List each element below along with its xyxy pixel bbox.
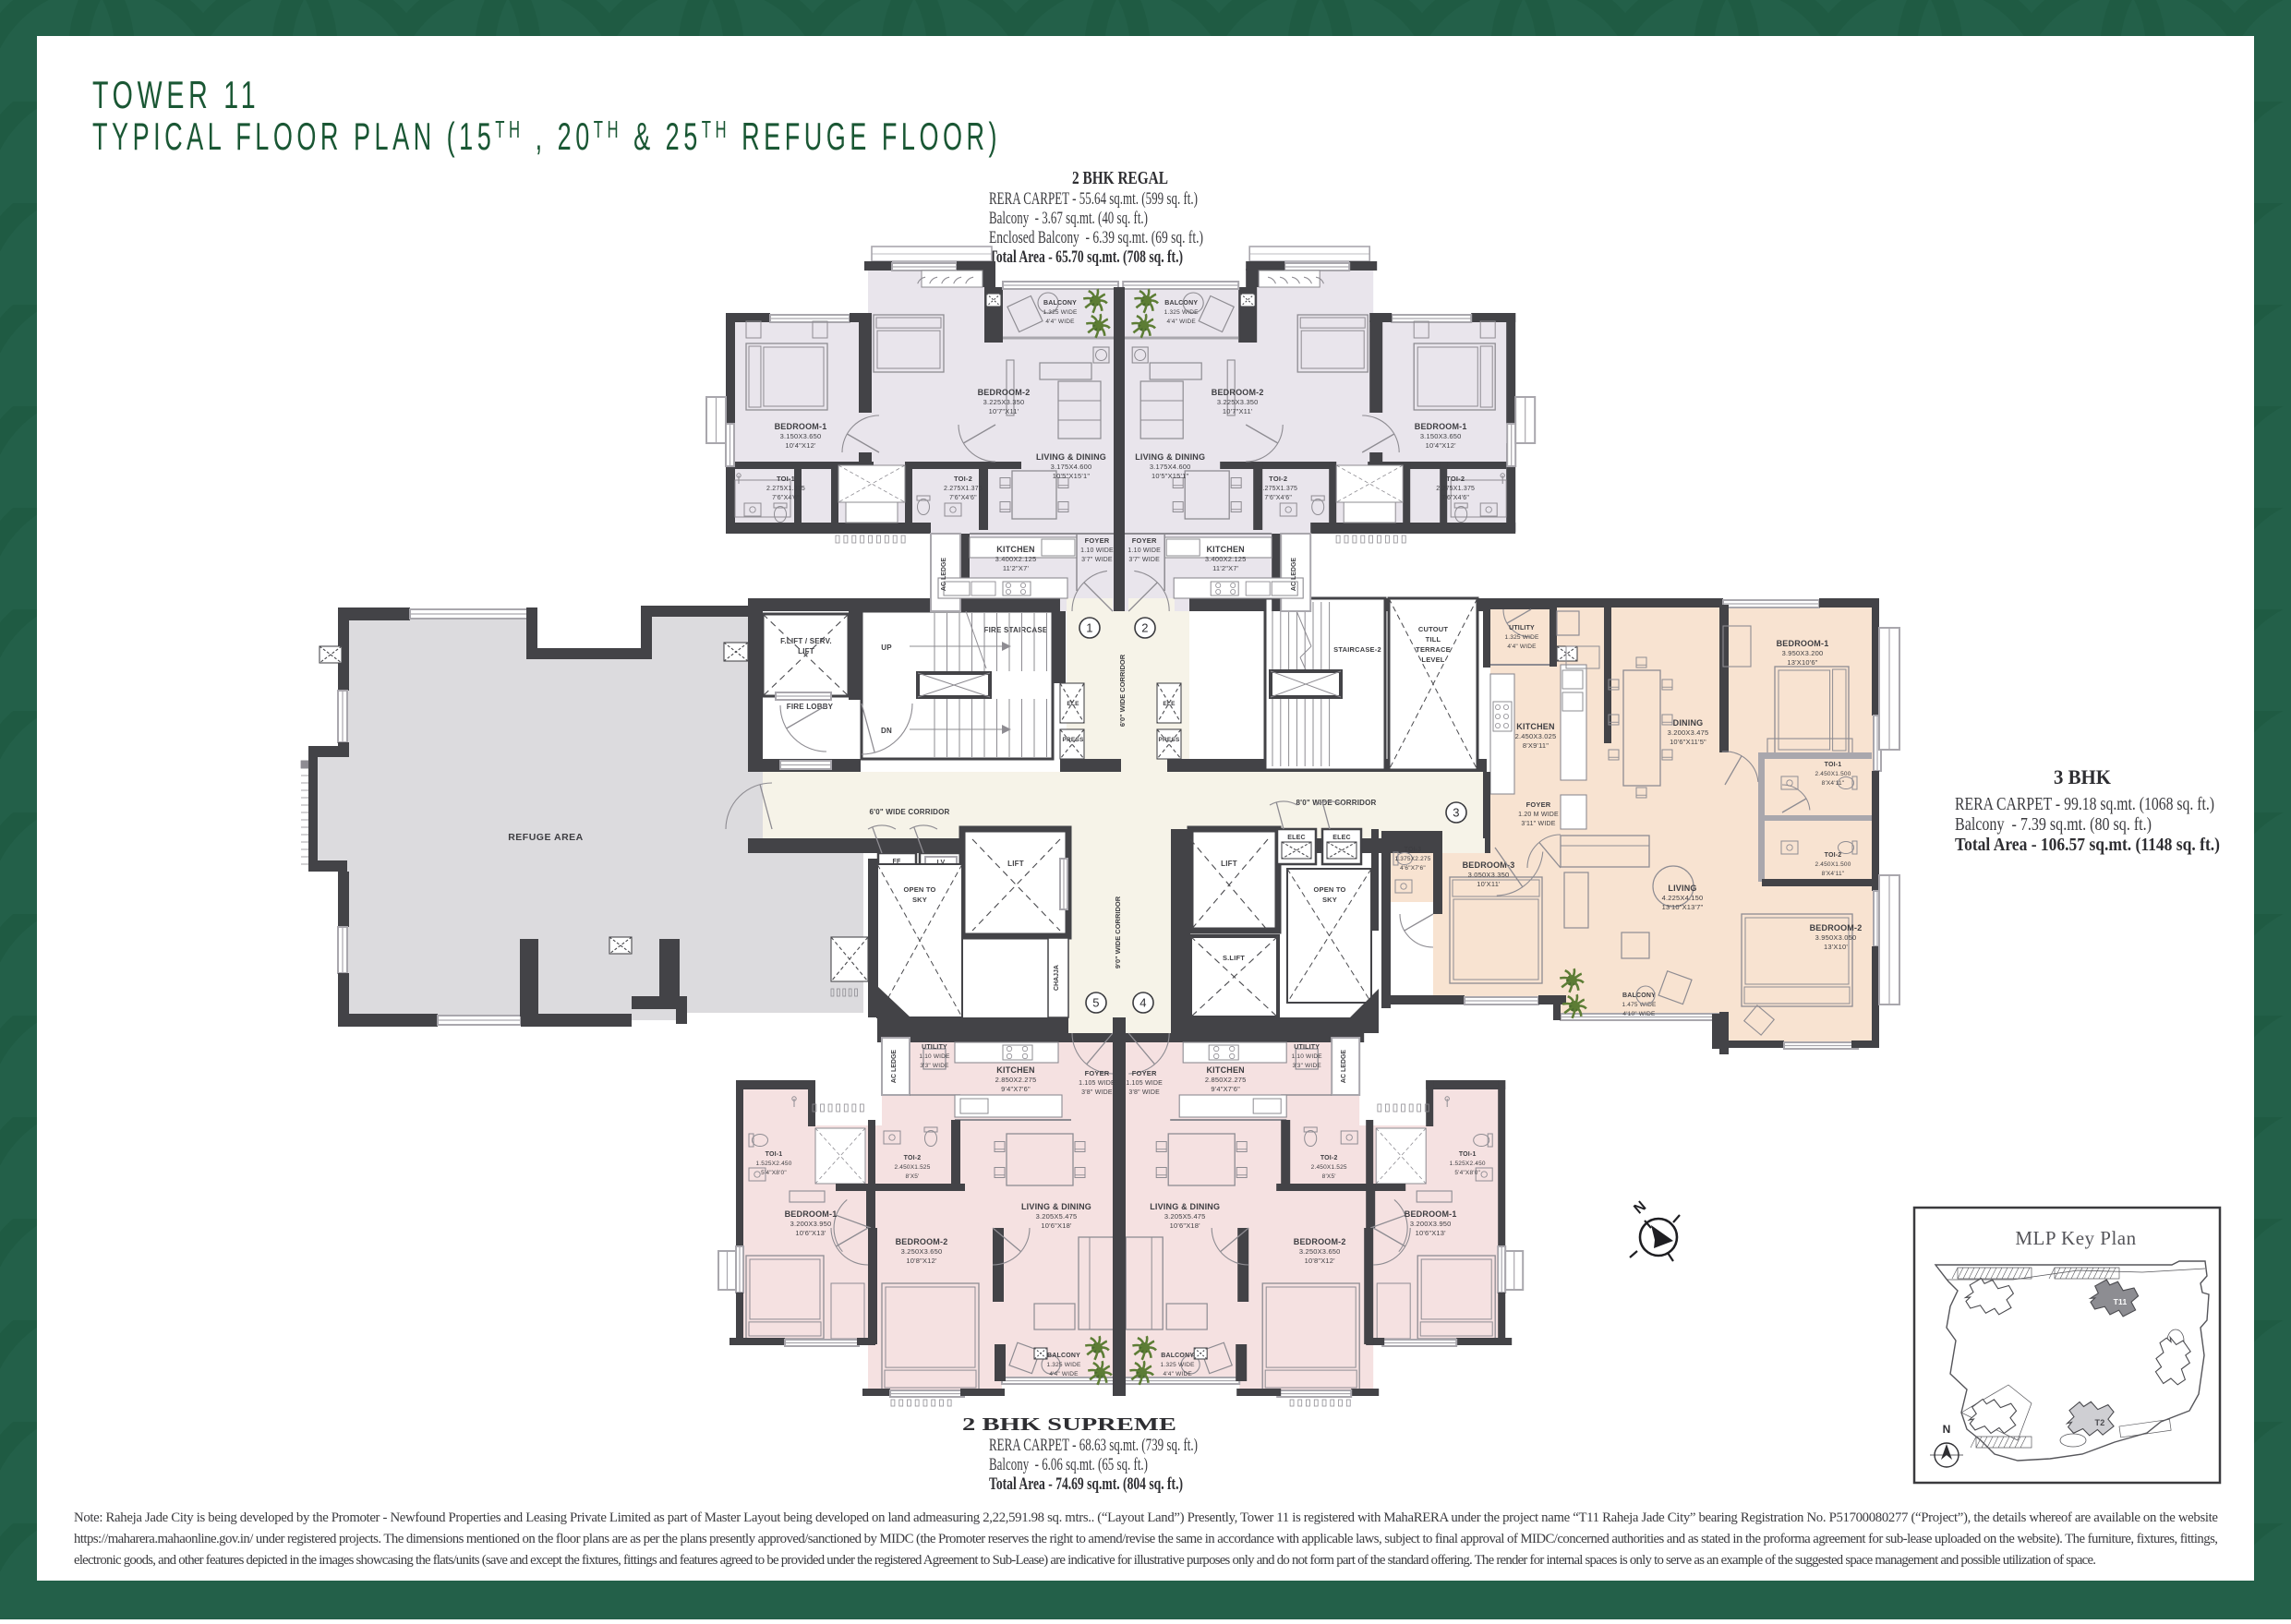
svg-text:F.LIFT / SERV.: F.LIFT / SERV. (780, 637, 832, 645)
svg-text:10'X11': 10'X11' (1477, 880, 1501, 888)
svg-text:ELEC: ELEC (1332, 835, 1350, 841)
svg-text:1.10 WIDE: 1.10 WIDE (1127, 547, 1161, 554)
svg-text:5: 5 (1092, 996, 1099, 1010)
svg-text:7'6"X4'6": 7'6"X4'6" (772, 495, 800, 501)
svg-text:2 BHK SUPREME: 2 BHK SUPREME (962, 1414, 1176, 1435)
svg-text:10'7"X11': 10'7"X11' (1223, 407, 1253, 415)
svg-text:3.175X4.600: 3.175X4.600 (1051, 463, 1092, 471)
svg-text:10'4"X12': 10'4"X12' (1426, 441, 1457, 450)
svg-text:Total Area - 106.57 sq.mt. (11: Total Area - 106.57 sq.mt. (1148 sq. ft.… (1955, 835, 2220, 855)
svg-text:1.10 WIDE: 1.10 WIDE (1292, 1053, 1323, 1060)
svg-text:3.250X3.650: 3.250X3.650 (901, 1247, 943, 1256)
svg-text:3'7" WIDE: 3'7" WIDE (1081, 557, 1113, 563)
svg-text:10'6"X18': 10'6"X18' (1041, 1221, 1072, 1230)
svg-text:BEDROOM-2: BEDROOM-2 (1294, 1237, 1346, 1246)
svg-text:FOYER: FOYER (1085, 1069, 1110, 1077)
svg-text:8'0" WIDE CORRIDOR: 8'0" WIDE CORRIDOR (1296, 799, 1376, 807)
svg-text:CUTOUT: CUTOUT (1418, 625, 1449, 633)
svg-text:TOI-2: TOI-2 (1825, 852, 1842, 859)
svg-text:LIVING: LIVING (1668, 884, 1696, 893)
svg-text:BEDROOM-1: BEDROOM-1 (1777, 639, 1829, 648)
svg-text:KITCHEN: KITCHEN (1206, 1065, 1244, 1075)
svg-text:LIFT: LIFT (1007, 860, 1024, 868)
svg-text:8'X4'11": 8'X4'11" (1822, 780, 1845, 787)
svg-text:2.275X1.375: 2.275X1.375 (1436, 486, 1475, 492)
svg-text:FOYER: FOYER (1526, 800, 1551, 809)
svg-text:FOYER: FOYER (1132, 1069, 1157, 1077)
svg-text:BALCONY: BALCONY (1043, 300, 1077, 307)
svg-text:BEDROOM-1: BEDROOM-1 (785, 1209, 838, 1219)
svg-text:1: 1 (1086, 621, 1092, 635)
svg-text:TOI-2: TOI-2 (1320, 1155, 1338, 1161)
svg-text:TOI-1: TOI-1 (1825, 762, 1842, 768)
svg-text:7'6"X4'6": 7'6"X4'6" (1441, 495, 1469, 501)
svg-text:4'4" WIDE: 4'4" WIDE (1045, 319, 1075, 325)
svg-text:TOWER 11: TOWER 11 (92, 72, 259, 116)
svg-text:3.400X2.125: 3.400X2.125 (1205, 555, 1247, 563)
svg-text:10'5"X15'1": 10'5"X15'1" (1152, 472, 1189, 480)
svg-text:electronic goods, and other fe: electronic goods, and other features dep… (74, 1553, 2096, 1568)
svg-text:9'4"X7'6": 9'4"X7'6" (1211, 1085, 1240, 1093)
svg-text:3.205X5.475: 3.205X5.475 (1164, 1212, 1206, 1221)
svg-text:4'4" WIDE: 4'4" WIDE (1164, 1371, 1193, 1377)
svg-text:BEDROOM-1: BEDROOM-1 (1405, 1209, 1457, 1219)
svg-text:3.150X3.650: 3.150X3.650 (1420, 432, 1462, 440)
svg-text:Note: Raheja Jade City is bein: Note: Raheja Jade City is being develope… (74, 1510, 2218, 1525)
svg-text:8'X9'11": 8'X9'11" (1523, 741, 1549, 750)
svg-text:ELE: ELE (1067, 701, 1079, 707)
svg-text:3.250X3.650: 3.250X3.650 (1299, 1247, 1341, 1256)
svg-text:3 BHK: 3 BHK (2054, 765, 2111, 788)
svg-text:1.20 M WIDE: 1.20 M WIDE (1518, 812, 1559, 818)
svg-text:3'3" WIDE: 3'3" WIDE (920, 1063, 949, 1069)
svg-text:1.10 WIDE: 1.10 WIDE (1080, 547, 1114, 554)
svg-text:LIVING & DINING: LIVING & DINING (1021, 1202, 1091, 1211)
svg-text:2.850X2.275: 2.850X2.275 (1205, 1076, 1247, 1084)
svg-text:UTILITY: UTILITY (1509, 625, 1535, 632)
svg-text:UP: UP (881, 644, 892, 652)
svg-text:KITCHEN: KITCHEN (996, 1065, 1034, 1075)
svg-text:SKY: SKY (1322, 896, 1337, 904)
svg-text:MLP Key Plan: MLP Key Plan (2015, 1227, 2136, 1249)
svg-text:TILL: TILL (1426, 635, 1441, 644)
svg-text:BEDROOM-2: BEDROOM-2 (896, 1237, 948, 1246)
svg-text:11'2"X7': 11'2"X7' (1212, 564, 1239, 572)
svg-text:Balcony - 7.39 sq.mt. (80 sq.: Balcony - 7.39 sq.mt. (80 sq. ft.) (1955, 814, 2152, 835)
svg-text:LIVING & DINING: LIVING & DINING (1150, 1202, 1220, 1211)
svg-text:1.525X2.450: 1.525X2.450 (755, 1161, 791, 1167)
svg-text:BALCONY: BALCONY (1164, 300, 1198, 307)
svg-text:3.950X3.050: 3.950X3.050 (1815, 933, 1857, 942)
svg-text:LIVING & DINING: LIVING & DINING (1135, 452, 1205, 462)
svg-text:3.205X5.475: 3.205X5.475 (1036, 1212, 1078, 1221)
svg-text:1.325 WIDE: 1.325 WIDE (1161, 1362, 1196, 1368)
svg-text:3.225X3.350: 3.225X3.350 (983, 398, 1025, 406)
svg-text:KITCHEN: KITCHEN (1206, 545, 1244, 554)
svg-text:LEVEL: LEVEL (1421, 656, 1444, 664)
svg-text:3.150X3.650: 3.150X3.650 (780, 432, 822, 440)
svg-text:https://maharera.mahaonline.go: https://maharera.mahaonline.gov.in/ unde… (74, 1532, 2218, 1546)
svg-text:8'X4'11": 8'X4'11" (1822, 871, 1845, 877)
svg-text:4.225X4.150: 4.225X4.150 (1662, 894, 1704, 902)
svg-text:ELEC: ELEC (1287, 835, 1305, 841)
svg-text:3.200X3.475: 3.200X3.475 (1668, 728, 1709, 737)
svg-text:LIFT: LIFT (798, 647, 814, 656)
svg-text:N: N (1943, 1423, 1951, 1436)
svg-text:7'6"X4'6": 7'6"X4'6" (1264, 495, 1292, 501)
svg-text:2 BHK REGAL: 2 BHK REGAL (1072, 168, 1168, 188)
svg-text:3.225X3.350: 3.225X3.350 (1217, 398, 1259, 406)
svg-text:KITCHEN: KITCHEN (1516, 722, 1554, 731)
svg-text:1.325 WIDE: 1.325 WIDE (1046, 1362, 1081, 1368)
svg-text:11'2"X7': 11'2"X7' (1003, 564, 1030, 572)
svg-text:AC LEDGE: AC LEDGE (891, 1050, 898, 1084)
svg-text:3'11" WIDE: 3'11" WIDE (1521, 821, 1555, 827)
svg-text:AC LEDGE: AC LEDGE (1291, 558, 1297, 592)
svg-text:Total Area - 65.70 sq.mt. (708: Total Area - 65.70 sq.mt. (708 sq. ft.) (989, 247, 1183, 267)
svg-text:7'6"X4'6": 7'6"X4'6" (949, 495, 977, 501)
svg-text:3'8" WIDE: 3'8" WIDE (1081, 1089, 1113, 1096)
svg-text:CHAJJA: CHAJJA (1054, 965, 1060, 991)
svg-text:3.950X3.200: 3.950X3.200 (1782, 649, 1824, 657)
svg-text:10'7"X11': 10'7"X11' (989, 407, 1019, 415)
svg-text:5'4"X8'0": 5'4"X8'0" (1454, 1170, 1480, 1176)
svg-text:10'4"X12': 10'4"X12' (785, 441, 816, 450)
svg-text:10'8"X12': 10'8"X12' (906, 1257, 937, 1265)
svg-text:BALCONY: BALCONY (1161, 1353, 1194, 1359)
svg-text:BEDROOM-2: BEDROOM-2 (978, 388, 1031, 397)
svg-text:4: 4 (1139, 996, 1146, 1010)
svg-text:PRESS: PRESS (1062, 737, 1084, 743)
svg-text:8'X5': 8'X5' (905, 1173, 919, 1180)
svg-text:KITCHEN: KITCHEN (996, 545, 1034, 554)
svg-text:2.450X1.525: 2.450X1.525 (894, 1164, 930, 1171)
svg-text:BEDROOM-1: BEDROOM-1 (1415, 422, 1467, 431)
svg-text:2.275X1.375: 2.275X1.375 (944, 486, 983, 492)
svg-text:TERRACE: TERRACE (1416, 645, 1451, 654)
svg-text:3: 3 (1453, 806, 1459, 820)
svg-text:3.400X2.125: 3.400X2.125 (995, 555, 1037, 563)
svg-text:TOI-2: TOI-2 (904, 1155, 922, 1161)
svg-text:AC LEDGE: AC LEDGE (941, 558, 947, 592)
svg-text:BEDROOM-2: BEDROOM-2 (1810, 923, 1863, 932)
svg-text:2.450X3.025: 2.450X3.025 (1515, 732, 1557, 740)
svg-text:8'X5': 8'X5' (1322, 1173, 1336, 1180)
svg-text:5'4"X8'0": 5'4"X8'0" (761, 1170, 787, 1176)
svg-text:FIRE STAIRCASE: FIRE STAIRCASE (984, 626, 1048, 634)
svg-text:TYPICAL FLOOR PLAN (15TH , 20T: TYPICAL FLOOR PLAN (15TH , 20TH & 25TH R… (92, 115, 1001, 158)
svg-text:RERA CARPET - 55.64 sq.mt. (59: RERA CARPET - 55.64 sq.mt. (599 sq. ft.) (989, 189, 1198, 209)
svg-text:UTILITY: UTILITY (1294, 1044, 1320, 1051)
svg-text:STAIRCASE-2: STAIRCASE-2 (1333, 645, 1381, 654)
svg-text:OPEN TO: OPEN TO (1313, 885, 1345, 894)
svg-text:2: 2 (1141, 621, 1148, 635)
svg-text:Total Area - 74.69 sq.mt. (804: Total Area - 74.69 sq.mt. (804 sq. ft.) (989, 1474, 1183, 1494)
svg-text:10'5"X15'1": 10'5"X15'1" (1053, 472, 1091, 480)
svg-text:TOI-2: TOI-2 (1446, 475, 1465, 483)
svg-text:UTILITY: UTILITY (922, 1044, 947, 1051)
svg-text:LIFT: LIFT (1221, 860, 1237, 868)
svg-text:13'10"X13'7": 13'10"X13'7" (1662, 903, 1704, 911)
svg-text:10'6"X13': 10'6"X13' (1416, 1229, 1447, 1237)
svg-text:1.325 WIDE: 1.325 WIDE (1164, 309, 1200, 316)
svg-text:1.10 WIDE: 1.10 WIDE (919, 1053, 950, 1060)
svg-text:T11: T11 (2114, 1297, 2128, 1306)
svg-text:1.325 WIDE: 1.325 WIDE (1504, 634, 1539, 641)
svg-text:2.450X1.500: 2.450X1.500 (1815, 771, 1851, 777)
svg-text:OPEN TO: OPEN TO (903, 885, 935, 894)
svg-text:BEDROOM-2: BEDROOM-2 (1212, 388, 1264, 397)
svg-text:13'X10'6": 13'X10'6" (1787, 658, 1817, 667)
svg-text:9'0" WIDE CORRIDOR: 9'0" WIDE CORRIDOR (1114, 896, 1122, 968)
svg-text:TOI-2: TOI-2 (954, 475, 972, 483)
svg-text:BEDROOM-1: BEDROOM-1 (775, 422, 827, 431)
svg-text:AC LEDGE: AC LEDGE (1341, 1050, 1347, 1084)
svg-text:1.105 WIDE: 1.105 WIDE (1126, 1080, 1163, 1087)
svg-text:LIVING & DINING: LIVING & DINING (1036, 452, 1106, 462)
svg-text:4'6"X7'6": 4'6"X7'6" (1400, 865, 1426, 872)
svg-text:2.450X1.525: 2.450X1.525 (1311, 1164, 1347, 1171)
svg-text:REFUGE AREA: REFUGE AREA (508, 832, 584, 843)
svg-text:10'6"X18': 10'6"X18' (1170, 1221, 1201, 1230)
svg-text:DINING: DINING (1673, 718, 1704, 728)
svg-text:ELE: ELE (1163, 701, 1176, 707)
svg-text:3.200X3.950: 3.200X3.950 (1410, 1220, 1452, 1228)
svg-text:DN: DN (881, 727, 892, 735)
svg-text:3.050X3.350: 3.050X3.350 (1468, 871, 1510, 879)
svg-text:1.375X2.275: 1.375X2.275 (1394, 856, 1430, 862)
svg-text:FOYER: FOYER (1132, 536, 1157, 545)
svg-text:3.200X3.950: 3.200X3.950 (790, 1220, 832, 1228)
svg-text:BALCONY: BALCONY (1622, 992, 1656, 999)
svg-text:2.850X2.275: 2.850X2.275 (995, 1076, 1037, 1084)
svg-text:4'10" WIDE: 4'10" WIDE (1622, 1011, 1656, 1017)
svg-text:TOI-1: TOI-1 (777, 475, 795, 483)
svg-text:S.LIFT: S.LIFT (1223, 954, 1245, 962)
svg-text:10'8"X12': 10'8"X12' (1305, 1257, 1336, 1265)
svg-text:FIRE LOBBY: FIRE LOBBY (787, 703, 834, 711)
svg-text:PRESS: PRESS (1158, 737, 1180, 743)
svg-text:10'6"X11'5": 10'6"X11'5" (1670, 738, 1706, 746)
svg-text:SKY: SKY (912, 896, 927, 904)
svg-text:2.275X1.375: 2.275X1.375 (766, 486, 805, 492)
svg-text:TOI-1: TOI-1 (766, 1151, 783, 1158)
svg-text:4'4" WIDE: 4'4" WIDE (1507, 644, 1537, 650)
svg-text:1.325 WIDE: 1.325 WIDE (1043, 309, 1078, 316)
svg-text:2.450X1.500: 2.450X1.500 (1815, 861, 1851, 868)
svg-text:3'7" WIDE: 3'7" WIDE (1128, 557, 1160, 563)
svg-text:6'0" WIDE CORRIDOR: 6'0" WIDE CORRIDOR (1118, 654, 1127, 727)
svg-text:13'X10': 13'X10' (1824, 943, 1848, 951)
svg-text:BALCONY: BALCONY (1047, 1353, 1080, 1359)
svg-text:TOI-1: TOI-1 (1459, 1151, 1477, 1158)
svg-text:3'8" WIDE: 3'8" WIDE (1128, 1089, 1160, 1096)
svg-text:RERA CARPET - 68.63 sq.mt. (73: RERA CARPET - 68.63 sq.mt. (739 sq. ft.) (989, 1436, 1198, 1455)
svg-text:RERA CARPET - 99.18 sq.mt. (10: RERA CARPET - 99.18 sq.mt. (1068 sq. ft.… (1955, 794, 2214, 814)
svg-text:2.275X1.375: 2.275X1.375 (1259, 486, 1297, 492)
svg-text:Balcony - 3.67 sq.mt. (40 sq.: Balcony - 3.67 sq.mt. (40 sq. ft.) (989, 209, 1148, 228)
svg-text:FOYER: FOYER (1085, 536, 1110, 545)
svg-text:T2: T2 (2095, 1418, 2105, 1427)
svg-text:3.175X4.600: 3.175X4.600 (1150, 463, 1191, 471)
svg-text:4'4" WIDE: 4'4" WIDE (1049, 1371, 1079, 1377)
svg-text:3'3" WIDE: 3'3" WIDE (1293, 1063, 1322, 1069)
svg-text:Balcony - 6.06 sq.mt. (65 sq.: Balcony - 6.06 sq.mt. (65 sq. ft.) (989, 1455, 1148, 1474)
svg-text:4'4" WIDE: 4'4" WIDE (1167, 319, 1197, 325)
svg-text:10'6"X13': 10'6"X13' (795, 1229, 826, 1237)
svg-text:Enclosed Balcony - 6.39 sq.mt: Enclosed Balcony - 6.39 sq.mt. (69 sq. f… (989, 228, 1203, 247)
svg-text:1.105 WIDE: 1.105 WIDE (1079, 1080, 1115, 1087)
svg-text:6'0" WIDE CORRIDOR: 6'0" WIDE CORRIDOR (869, 808, 949, 816)
svg-text:9'4"X7'6": 9'4"X7'6" (1001, 1085, 1031, 1093)
svg-text:TOI-3: TOI-3 (1405, 847, 1422, 853)
svg-text:TOI-2: TOI-2 (1269, 475, 1287, 483)
svg-text:1.525X2.450: 1.525X2.450 (1450, 1161, 1486, 1167)
